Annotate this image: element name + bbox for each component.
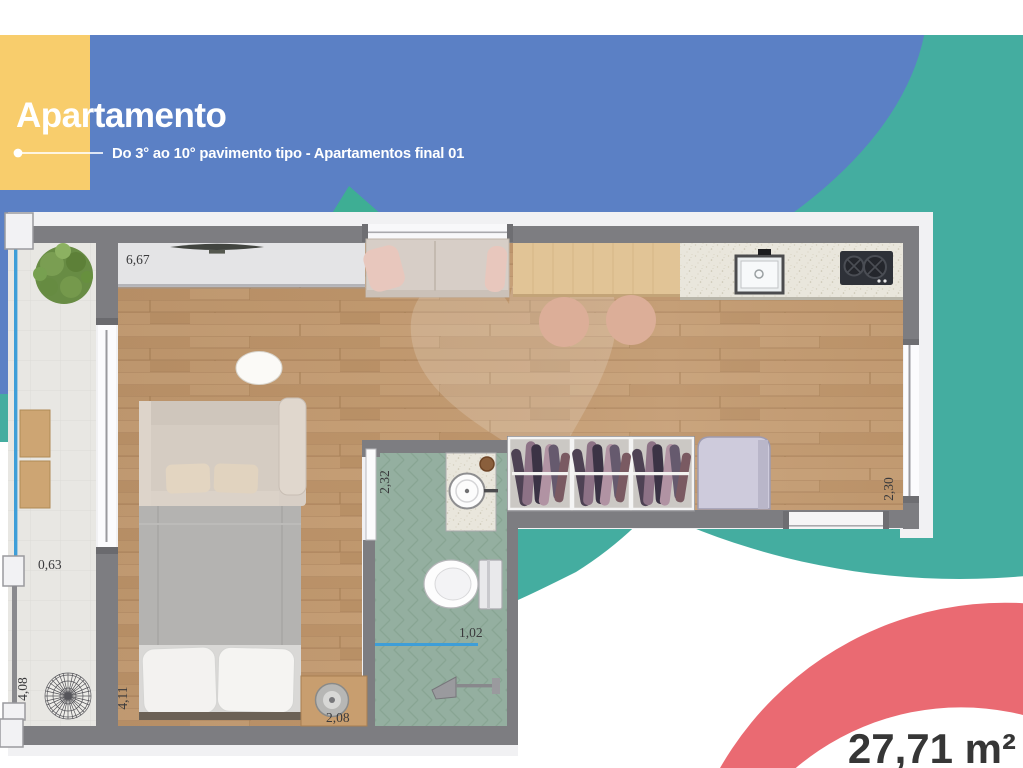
svg-text:2,32: 2,32	[377, 470, 392, 494]
svg-text:1,02: 1,02	[459, 625, 483, 640]
svg-text:2,08: 2,08	[326, 710, 350, 725]
svg-text:Do 3° ao 10° pavimento tipo -: Do 3° ao 10° pavimento tipo - Apartament…	[112, 146, 464, 162]
svg-text:0,63: 0,63	[38, 557, 62, 572]
svg-text:27,71 m²: 27,71 m²	[848, 725, 1016, 768]
svg-text:4,11: 4,11	[115, 686, 130, 709]
svg-text:4,08: 4,08	[15, 677, 30, 701]
svg-text:2,30: 2,30	[881, 477, 896, 501]
svg-text:Apartamento: Apartamento	[16, 96, 226, 135]
svg-text:6,67: 6,67	[126, 252, 150, 267]
